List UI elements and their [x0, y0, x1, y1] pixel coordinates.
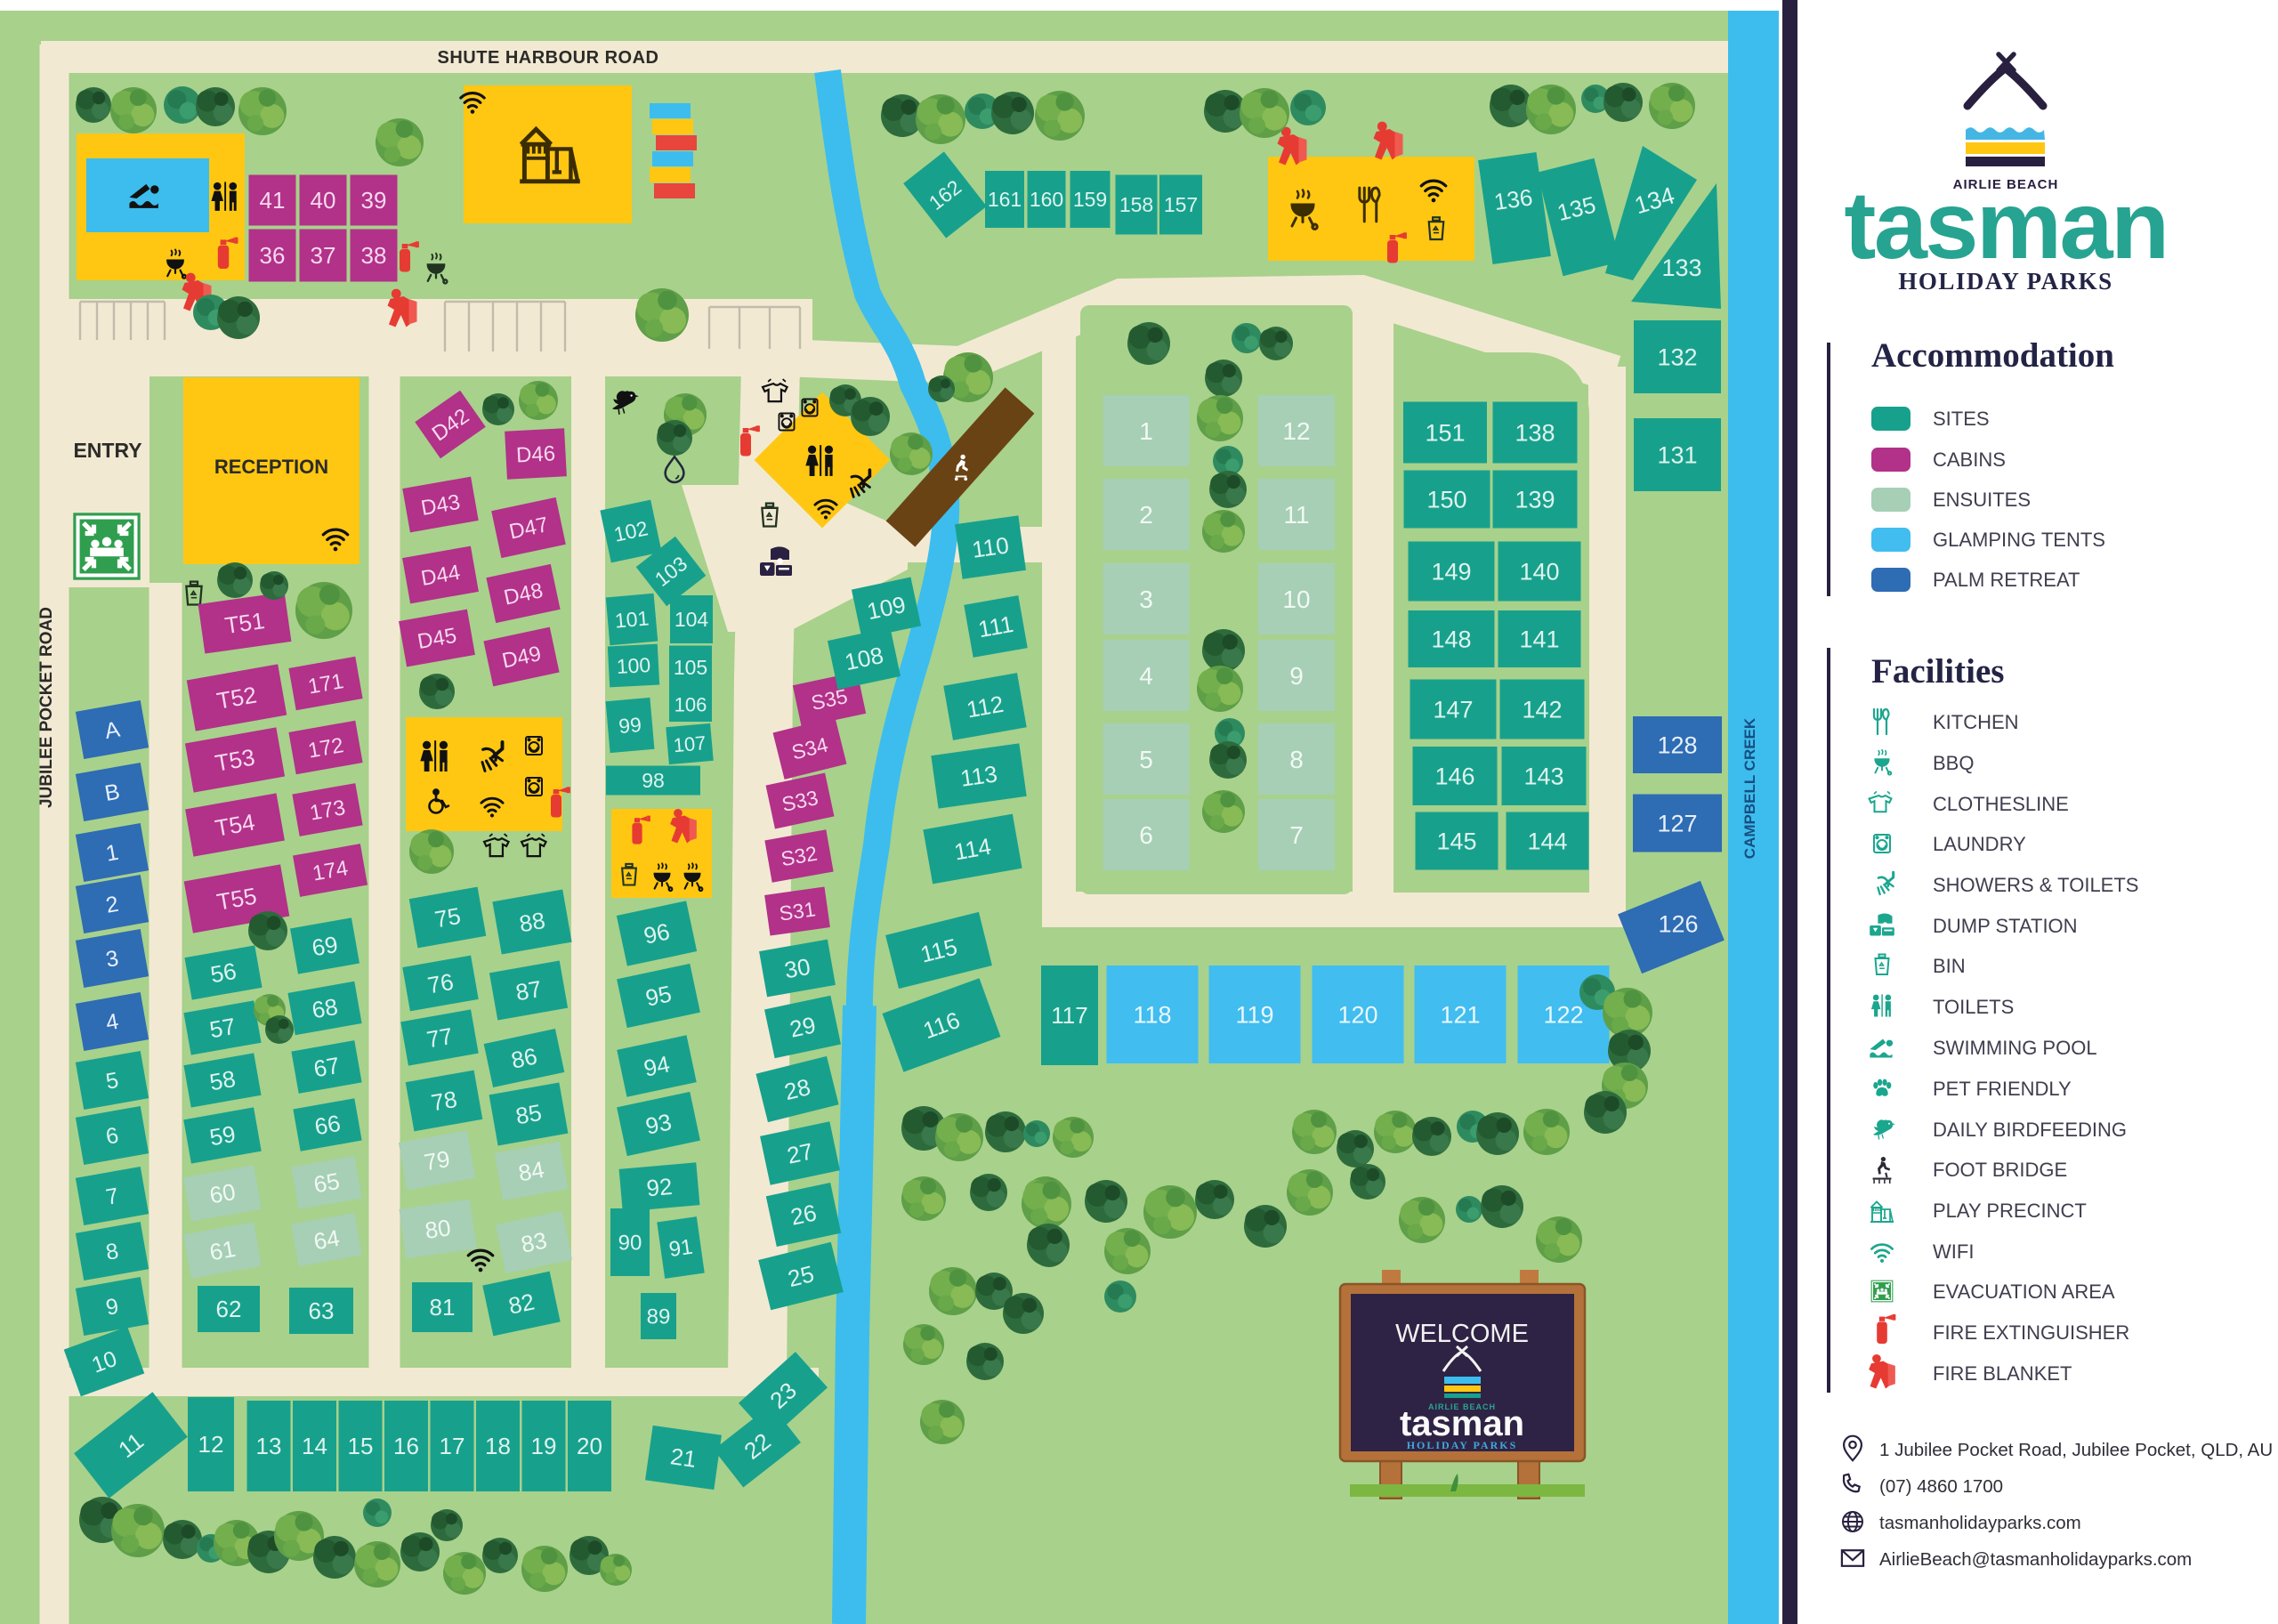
svg-text:KITCHEN: KITCHEN	[1933, 711, 2019, 733]
svg-text:ENTRY: ENTRY	[73, 439, 141, 462]
svg-text:14: 14	[302, 1433, 327, 1459]
svg-text:144: 144	[1527, 828, 1567, 854]
svg-text:Facilities: Facilities	[1871, 652, 2004, 691]
svg-text:16: 16	[393, 1433, 419, 1459]
svg-text:tasmanholidayparks.com: tasmanholidayparks.com	[1879, 1513, 2081, 1533]
svg-text:30: 30	[782, 953, 812, 984]
svg-text:BIN: BIN	[1933, 955, 1966, 977]
svg-text:85: 85	[513, 1099, 544, 1130]
svg-text:AirlieBeach@tasmanholidayparks: AirlieBeach@tasmanholidayparks.com	[1879, 1549, 2192, 1570]
svg-text:146: 146	[1434, 763, 1474, 789]
svg-text:38: 38	[361, 242, 387, 269]
svg-text:93: 93	[643, 1108, 675, 1139]
svg-text:1 Jubilee Pocket Road, Jubilee: 1 Jubilee Pocket Road, Jubilee Pocket, Q…	[1879, 1440, 2273, 1460]
svg-text:T51: T51	[223, 607, 267, 639]
svg-text:118: 118	[1133, 1001, 1171, 1028]
svg-text:96: 96	[642, 917, 673, 949]
svg-text:36: 36	[260, 242, 286, 269]
svg-text:136: 136	[1492, 183, 1534, 215]
svg-text:1: 1	[1139, 417, 1153, 445]
svg-text:12: 12	[1282, 417, 1310, 445]
svg-text:JUBILEE POCKET ROAD: JUBILEE POCKET ROAD	[37, 607, 56, 808]
svg-text:CAMPBELL CREEK: CAMPBELL CREEK	[1741, 717, 1758, 859]
svg-text:98: 98	[642, 769, 665, 792]
svg-text:LAUNDRY: LAUNDRY	[1933, 833, 2026, 855]
svg-text:117: 117	[1051, 1002, 1087, 1029]
svg-text:41: 41	[260, 187, 286, 214]
svg-text:159: 159	[1073, 188, 1107, 211]
svg-text:75: 75	[432, 902, 463, 933]
svg-text:106: 106	[675, 694, 707, 716]
svg-text:95: 95	[643, 980, 675, 1011]
svg-text:WELCOME: WELCOME	[1395, 1320, 1529, 1348]
svg-text:110: 110	[970, 531, 1010, 562]
svg-text:7: 7	[1289, 821, 1304, 849]
svg-text:120: 120	[1337, 1001, 1377, 1028]
svg-text:138: 138	[1515, 419, 1555, 446]
svg-text:PALM RETREAT: PALM RETREAT	[1933, 569, 2080, 591]
svg-text:17: 17	[440, 1433, 465, 1459]
svg-text:ENSUITES: ENSUITES	[1933, 489, 2031, 511]
svg-text:119: 119	[1235, 1001, 1273, 1028]
svg-text:91: 91	[667, 1235, 694, 1262]
svg-text:151: 151	[1425, 419, 1465, 446]
svg-text:D46: D46	[515, 441, 555, 467]
svg-text:142: 142	[1522, 696, 1562, 723]
svg-text:56: 56	[208, 957, 238, 989]
svg-text:DUMP STATION: DUMP STATION	[1933, 915, 2078, 937]
svg-text:SITES: SITES	[1933, 408, 1990, 430]
svg-text:18: 18	[485, 1433, 511, 1459]
svg-text:94: 94	[642, 1050, 673, 1081]
svg-text:10: 10	[1282, 586, 1310, 613]
svg-text:92: 92	[645, 1173, 673, 1201]
svg-text:126: 126	[1658, 910, 1698, 937]
svg-text:15: 15	[348, 1433, 374, 1459]
svg-text:12: 12	[198, 1431, 224, 1458]
svg-text:68: 68	[310, 993, 340, 1024]
svg-text:6: 6	[1139, 821, 1153, 849]
svg-text:66: 66	[312, 1110, 343, 1141]
svg-text:FOOT BRIDGE: FOOT BRIDGE	[1933, 1159, 2067, 1181]
svg-text:13: 13	[256, 1433, 282, 1459]
svg-text:131: 131	[1657, 441, 1697, 468]
svg-text:133: 133	[1661, 255, 1701, 281]
svg-text:PLAY PRECINCT: PLAY PRECINCT	[1933, 1200, 2087, 1222]
svg-text:63: 63	[309, 1297, 335, 1324]
svg-text:148: 148	[1431, 626, 1471, 652]
svg-text:WIFI: WIFI	[1933, 1240, 1974, 1263]
svg-text:58: 58	[207, 1065, 238, 1096]
svg-text:139: 139	[1515, 486, 1555, 513]
svg-text:9: 9	[1289, 662, 1304, 690]
svg-text:121: 121	[1440, 1001, 1480, 1028]
svg-text:57: 57	[207, 1013, 238, 1044]
svg-text:88: 88	[517, 907, 547, 938]
svg-text:141: 141	[1519, 626, 1559, 652]
svg-text:FIRE BLANKET: FIRE BLANKET	[1933, 1362, 2072, 1385]
svg-text:27: 27	[785, 1137, 816, 1168]
svg-text:EVACUATION AREA: EVACUATION AREA	[1933, 1281, 2115, 1303]
svg-text:37: 37	[311, 242, 336, 269]
svg-text:82: 82	[506, 1288, 537, 1319]
svg-text:143: 143	[1523, 763, 1563, 789]
svg-text:160: 160	[1030, 188, 1063, 211]
svg-text:76: 76	[425, 968, 456, 999]
svg-text:104: 104	[675, 608, 709, 631]
svg-text:SWIMMING POOL: SWIMMING POOL	[1933, 1037, 2097, 1059]
svg-text:GLAMPING TENTS: GLAMPING TENTS	[1933, 529, 2105, 551]
svg-text:78: 78	[429, 1086, 459, 1117]
svg-text:SHOWERS & TOILETS: SHOWERS & TOILETS	[1933, 874, 2138, 896]
svg-text:5: 5	[1139, 746, 1153, 773]
svg-text:SHUTE HARBOUR ROAD: SHUTE HARBOUR ROAD	[438, 48, 659, 68]
svg-text:11: 11	[1283, 501, 1309, 529]
svg-text:Accommodation: Accommodation	[1871, 336, 2114, 375]
svg-text:86: 86	[509, 1042, 540, 1073]
svg-text:89: 89	[647, 1305, 671, 1329]
svg-text:BBQ: BBQ	[1933, 752, 1974, 774]
svg-text:69: 69	[310, 931, 340, 962]
svg-text:3: 3	[1139, 586, 1153, 613]
svg-text:39: 39	[361, 187, 387, 214]
svg-text:PET FRIENDLY: PET FRIENDLY	[1933, 1078, 2072, 1100]
svg-text:79: 79	[422, 1145, 452, 1176]
svg-text:83: 83	[519, 1226, 550, 1257]
svg-text:87: 87	[513, 975, 544, 1006]
svg-text:21: 21	[669, 1442, 699, 1473]
svg-text:149: 149	[1431, 558, 1471, 585]
svg-text:DAILY BIRDFEEDING: DAILY BIRDFEEDING	[1933, 1119, 2127, 1141]
svg-text:105: 105	[674, 656, 707, 679]
svg-text:67: 67	[311, 1052, 342, 1083]
svg-text:158: 158	[1119, 193, 1153, 216]
svg-text:65: 65	[311, 1168, 342, 1199]
svg-text:tasman: tasman	[1844, 171, 2167, 279]
svg-text:TOILETS: TOILETS	[1933, 996, 2014, 1018]
svg-text:FIRE EXTINGUISHER: FIRE EXTINGUISHER	[1933, 1321, 2129, 1344]
svg-text:107: 107	[673, 731, 707, 756]
svg-text:26: 26	[788, 1199, 820, 1230]
svg-text:62: 62	[216, 1296, 242, 1322]
svg-text:60: 60	[207, 1178, 238, 1209]
svg-text:80: 80	[424, 1214, 453, 1244]
svg-text:99: 99	[618, 713, 642, 738]
svg-text:19: 19	[531, 1433, 557, 1459]
svg-text:145: 145	[1436, 828, 1476, 854]
svg-text:64: 64	[311, 1224, 342, 1256]
svg-text:113: 113	[958, 760, 998, 791]
svg-text:HOLIDAY PARKS: HOLIDAY PARKS	[1898, 268, 2112, 295]
svg-text:RECEPTION: RECEPTION	[214, 456, 328, 478]
svg-text:122: 122	[1543, 1001, 1583, 1028]
svg-text:161: 161	[988, 188, 1022, 211]
svg-text:61: 61	[207, 1235, 238, 1266]
svg-text:132: 132	[1657, 343, 1697, 370]
svg-text:40: 40	[311, 187, 336, 214]
svg-text:140: 140	[1519, 558, 1559, 585]
svg-text:81: 81	[430, 1294, 456, 1321]
svg-text:147: 147	[1433, 696, 1473, 723]
svg-text:2: 2	[1139, 501, 1153, 529]
svg-text:CLOTHESLINE: CLOTHESLINE	[1933, 793, 2069, 815]
svg-text:tasman: tasman	[1400, 1404, 1524, 1443]
svg-text:127: 127	[1657, 810, 1697, 836]
svg-text:157: 157	[1164, 193, 1198, 216]
svg-text:CABINS: CABINS	[1933, 448, 2006, 471]
svg-text:HOLIDAY PARKS: HOLIDAY PARKS	[1407, 1439, 1518, 1451]
svg-text:(07) 4860 1700: (07) 4860 1700	[1879, 1476, 2003, 1497]
svg-text:77: 77	[424, 1022, 455, 1054]
svg-text:90: 90	[618, 1231, 642, 1255]
svg-text:20: 20	[577, 1433, 602, 1459]
svg-text:150: 150	[1426, 486, 1466, 513]
svg-text:84: 84	[516, 1156, 546, 1187]
svg-text:29: 29	[788, 1011, 819, 1042]
svg-text:8: 8	[1289, 746, 1304, 773]
svg-text:4: 4	[1139, 662, 1153, 690]
svg-text:59: 59	[207, 1120, 238, 1151]
svg-text:100: 100	[616, 653, 651, 678]
svg-text:101: 101	[614, 606, 650, 632]
svg-text:128: 128	[1657, 731, 1697, 758]
